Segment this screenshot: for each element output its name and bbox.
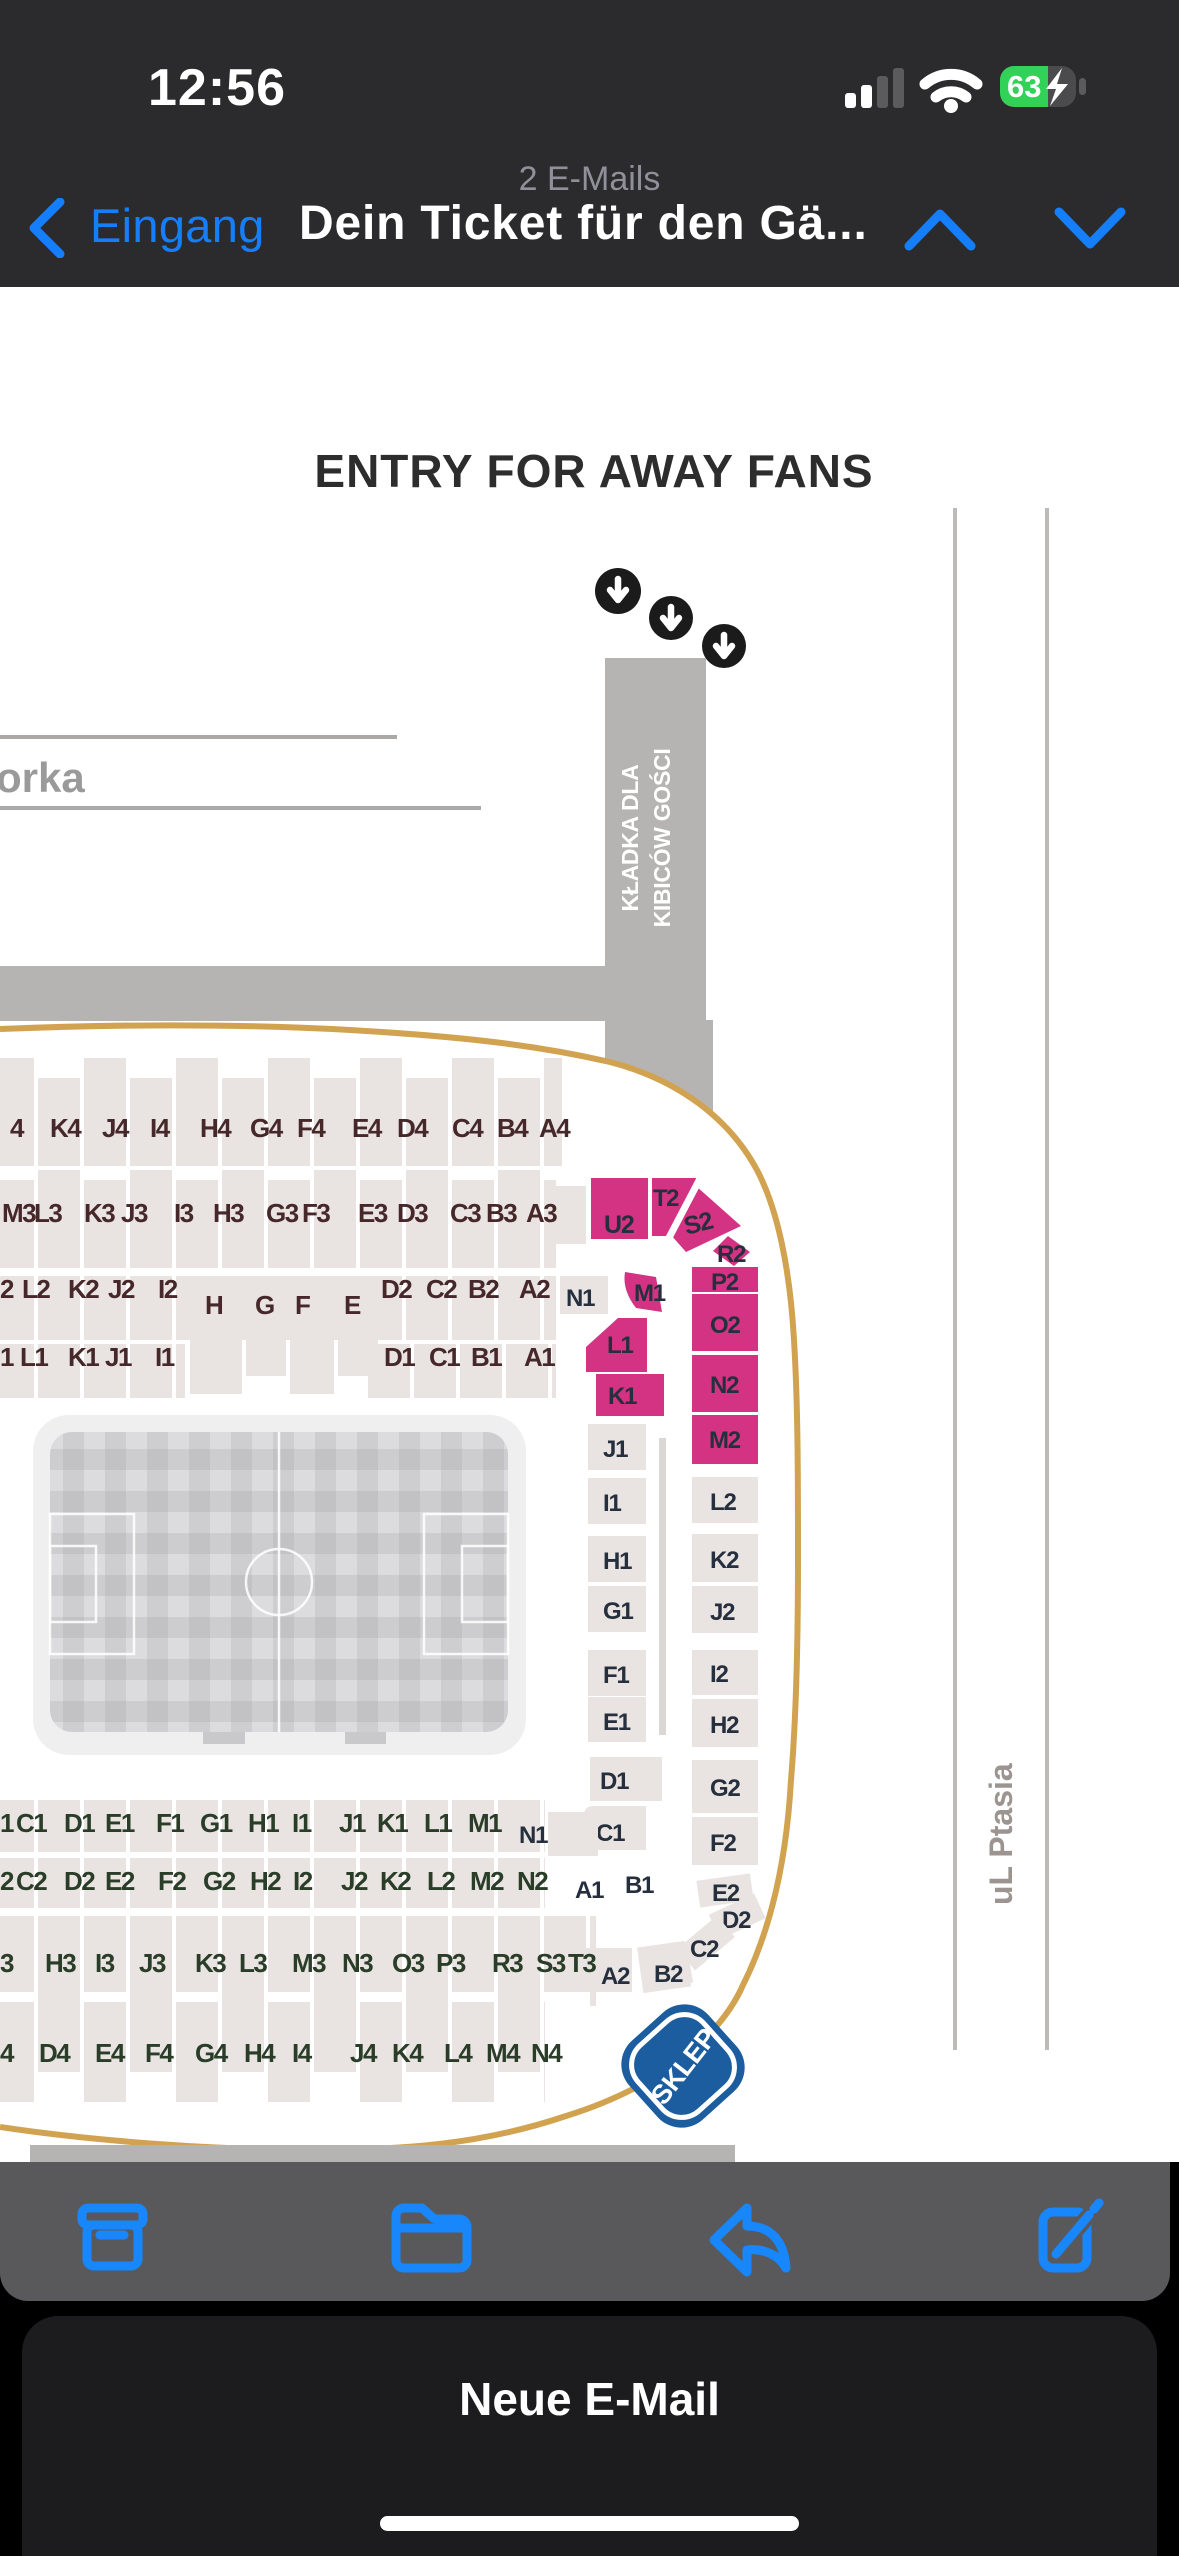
svg-text:L1: L1	[424, 1808, 452, 1838]
svg-text:H2: H2	[250, 1866, 281, 1896]
svg-text:J1: J1	[105, 1342, 132, 1372]
svg-text:G: G	[255, 1290, 274, 1320]
svg-text:I2: I2	[710, 1661, 728, 1688]
svg-text:I3: I3	[174, 1198, 194, 1228]
svg-text:D2: D2	[381, 1274, 412, 1304]
svg-text:1: 1	[0, 1342, 14, 1372]
svg-text:U2: U2	[604, 1211, 634, 1239]
svg-text:J4: J4	[102, 1113, 130, 1143]
svg-text:L1: L1	[20, 1342, 48, 1372]
svg-text:A2: A2	[601, 1963, 630, 1990]
svg-text:L2: L2	[427, 1866, 455, 1896]
svg-text:H1: H1	[248, 1808, 279, 1838]
svg-text:N1: N1	[566, 1285, 595, 1312]
svg-text:N4: N4	[531, 2038, 563, 2068]
svg-text:T2: T2	[653, 1185, 679, 1212]
svg-text:H3: H3	[213, 1198, 244, 1228]
svg-text:P3: P3	[436, 1948, 466, 1978]
svg-text:A1: A1	[575, 1877, 604, 1904]
svg-text:P2: P2	[711, 1269, 739, 1296]
svg-text:K1: K1	[377, 1808, 408, 1838]
svg-text:E1: E1	[105, 1808, 135, 1838]
svg-text:F4: F4	[297, 1113, 326, 1143]
svg-text:F1: F1	[156, 1808, 184, 1838]
svg-text:S3: S3	[536, 1948, 566, 1978]
svg-text:K4: K4	[392, 2038, 424, 2068]
svg-text:4: 4	[0, 2038, 15, 2068]
svg-text:D4: D4	[39, 2038, 71, 2068]
svg-text:L4: L4	[444, 2038, 473, 2068]
svg-text:E2: E2	[105, 1866, 135, 1896]
svg-text:C2: C2	[16, 1866, 47, 1896]
svg-text:K1: K1	[68, 1342, 99, 1372]
svg-text:C1: C1	[429, 1342, 460, 1372]
svg-text:F2: F2	[158, 1866, 186, 1896]
svg-text:1: 1	[0, 1808, 14, 1838]
svg-text:I1: I1	[292, 1808, 312, 1838]
svg-text:C3: C3	[450, 1198, 481, 1228]
svg-text:I2: I2	[293, 1866, 313, 1896]
svg-text:J1: J1	[339, 1808, 366, 1838]
svg-text:K2: K2	[68, 1274, 99, 1304]
svg-text:K4: K4	[50, 1113, 82, 1143]
svg-text:KIBICÓW GOŚCI: KIBICÓW GOŚCI	[648, 749, 675, 928]
svg-text:O3: O3	[392, 1948, 425, 1978]
svg-text:O2: O2	[710, 1312, 740, 1339]
svg-text:F3: F3	[302, 1198, 330, 1228]
svg-text:2: 2	[0, 1274, 14, 1304]
svg-text:H4: H4	[244, 2038, 276, 2068]
svg-text:B4: B4	[497, 1113, 529, 1143]
svg-text:E4: E4	[352, 1113, 383, 1143]
svg-text:E4: E4	[95, 2038, 126, 2068]
svg-text:H4: H4	[200, 1113, 232, 1143]
svg-text:H2: H2	[710, 1712, 739, 1739]
svg-text:K3: K3	[84, 1198, 115, 1228]
svg-text:F1: F1	[603, 1662, 629, 1689]
svg-text:J2: J2	[341, 1866, 368, 1896]
svg-text:L2: L2	[22, 1274, 50, 1304]
svg-text:K1: K1	[608, 1383, 637, 1410]
svg-text:F2: F2	[710, 1830, 736, 1857]
svg-text:B1: B1	[471, 1342, 502, 1372]
svg-text:C2: C2	[426, 1274, 457, 1304]
svg-text:C2: C2	[690, 1936, 719, 1963]
svg-text:2: 2	[0, 1866, 14, 1896]
svg-text:H3: H3	[45, 1948, 76, 1978]
svg-text:C4: C4	[452, 1113, 484, 1143]
svg-text:G4: G4	[195, 2038, 229, 2068]
svg-text:J3: J3	[139, 1948, 166, 1978]
svg-text:D4: D4	[397, 1113, 429, 1143]
svg-text:H1: H1	[603, 1548, 632, 1575]
svg-text:M3: M3	[2, 1198, 36, 1228]
svg-text:K3: K3	[195, 1948, 226, 1978]
svg-text:N1: N1	[519, 1822, 548, 1849]
svg-text:A4: A4	[539, 1113, 571, 1143]
svg-text:G1: G1	[603, 1598, 633, 1625]
svg-text:I1: I1	[603, 1490, 621, 1517]
svg-text:E: E	[344, 1290, 361, 1320]
svg-text:D1: D1	[600, 1768, 629, 1795]
svg-text:I3: I3	[95, 1948, 115, 1978]
svg-text:G2: G2	[710, 1775, 740, 1802]
svg-text:A3: A3	[526, 1198, 557, 1228]
svg-text:M2: M2	[709, 1427, 741, 1454]
svg-text:R3: R3	[492, 1948, 523, 1978]
svg-text:F4: F4	[145, 2038, 174, 2068]
svg-text:D1: D1	[384, 1342, 415, 1372]
svg-text:J2: J2	[108, 1274, 135, 1304]
svg-text:D1: D1	[64, 1808, 95, 1838]
svg-text:B2: B2	[654, 1961, 683, 1988]
svg-text:D2: D2	[64, 1866, 95, 1896]
svg-text:I1: I1	[155, 1342, 175, 1372]
svg-text:KŁADKA DLA: KŁADKA DLA	[617, 765, 643, 912]
svg-text:M1: M1	[468, 1808, 502, 1838]
svg-text:M2: M2	[470, 1866, 504, 1896]
svg-text:4: 4	[10, 1113, 25, 1143]
svg-text:J2: J2	[710, 1599, 735, 1626]
svg-text:N3: N3	[342, 1948, 373, 1978]
svg-text:H: H	[205, 1290, 223, 1320]
svg-text:L3: L3	[239, 1948, 267, 1978]
svg-text:T3: T3	[568, 1948, 596, 1978]
svg-text:M1: M1	[634, 1280, 666, 1307]
svg-text:M3: M3	[292, 1948, 326, 1978]
svg-text:I4: I4	[292, 2038, 313, 2068]
svg-text:D3: D3	[397, 1198, 428, 1228]
svg-text:G4: G4	[250, 1113, 284, 1143]
svg-text:C1: C1	[16, 1808, 47, 1838]
svg-text:uL Ptasia: uL Ptasia	[983, 1763, 1019, 1905]
svg-text:C1: C1	[596, 1820, 625, 1847]
svg-text:E3: E3	[358, 1198, 388, 1228]
svg-text:I2: I2	[158, 1274, 178, 1304]
svg-text:B1: B1	[625, 1872, 654, 1899]
svg-text:J4: J4	[350, 2038, 378, 2068]
svg-text:orka: orka	[0, 754, 85, 801]
svg-text:ENTRY FOR AWAY FANS: ENTRY FOR AWAY FANS	[314, 445, 873, 497]
svg-text:G1: G1	[200, 1808, 233, 1838]
svg-text:F: F	[295, 1290, 310, 1320]
svg-text:R2: R2	[717, 1241, 746, 1268]
svg-text:K2: K2	[710, 1547, 739, 1574]
svg-text:B2: B2	[468, 1274, 499, 1304]
svg-text:3: 3	[0, 1948, 14, 1978]
svg-text:I4: I4	[150, 1113, 171, 1143]
svg-text:J1: J1	[603, 1436, 628, 1463]
svg-text:G3: G3	[266, 1198, 299, 1228]
svg-text:N2: N2	[517, 1866, 548, 1896]
svg-text:L1: L1	[607, 1332, 633, 1359]
svg-text:N2: N2	[710, 1372, 739, 1399]
svg-text:J3: J3	[121, 1198, 148, 1228]
svg-text:L2: L2	[710, 1489, 736, 1516]
svg-text:A2: A2	[519, 1274, 550, 1304]
svg-text:A1: A1	[524, 1342, 555, 1372]
svg-text:K2: K2	[380, 1866, 411, 1896]
svg-text:B3: B3	[486, 1198, 517, 1228]
svg-text:G2: G2	[203, 1866, 236, 1896]
svg-text:L3: L3	[34, 1198, 62, 1228]
svg-text:M4: M4	[486, 2038, 521, 2068]
svg-text:E1: E1	[603, 1709, 631, 1736]
